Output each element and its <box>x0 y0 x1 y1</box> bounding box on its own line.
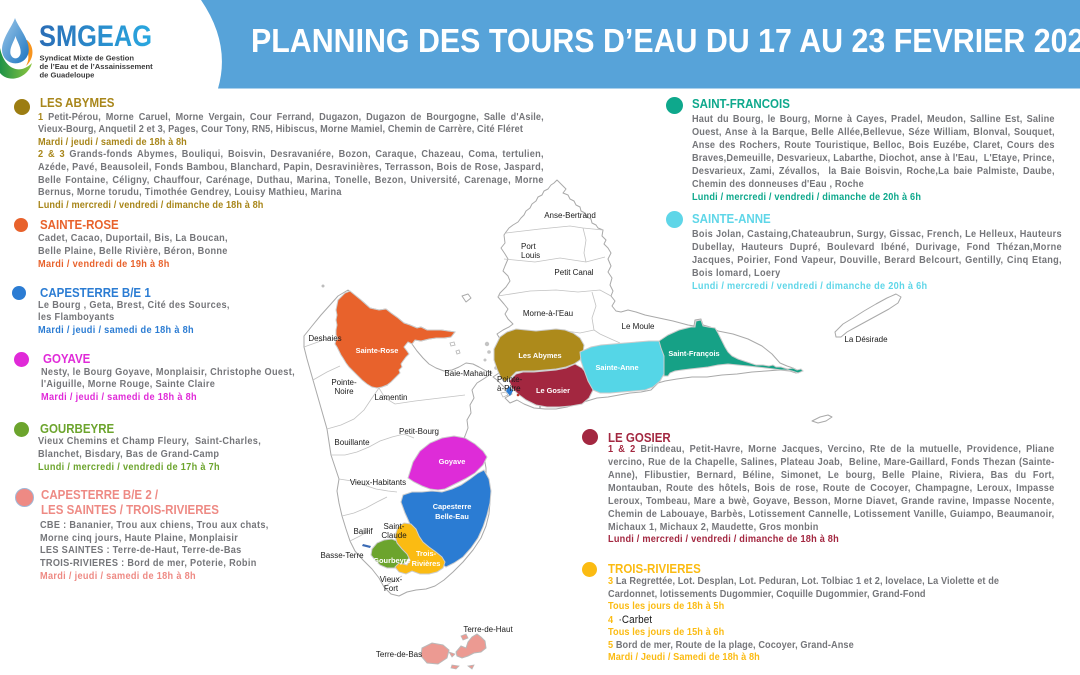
svg-text:Baie-Mahault: Baie-Mahault <box>444 369 492 378</box>
svg-text:Louis: Louis <box>521 251 540 260</box>
svg-text:Anse-Bertrand: Anse-Bertrand <box>544 211 596 220</box>
svg-text:La Désirade: La Désirade <box>844 335 888 344</box>
svg-text:Port: Port <box>521 242 536 251</box>
svg-text:Le Gosier: Le Gosier <box>536 386 570 395</box>
svg-text:Petit Canal: Petit Canal <box>554 268 593 277</box>
svg-text:Noire: Noire <box>334 387 354 396</box>
svg-text:Petit-Bourg: Petit-Bourg <box>399 427 439 436</box>
svg-text:Vieux-: Vieux- <box>380 575 403 584</box>
svg-text:Saint-François: Saint-François <box>668 349 719 358</box>
svg-text:Sainte-Rose: Sainte-Rose <box>356 346 399 355</box>
svg-text:à-Pitre: à-Pitre <box>497 384 521 393</box>
svg-text:Morne-à-l’Eau: Morne-à-l’Eau <box>523 309 573 318</box>
svg-text:SMGEAG: SMGEAG <box>39 20 152 53</box>
svg-text:Le Moule: Le Moule <box>622 322 655 331</box>
svg-text:Claude: Claude <box>381 531 407 540</box>
svg-text:Pointe-: Pointe- <box>331 378 357 387</box>
svg-text:Trois-: Trois- <box>416 549 437 558</box>
svg-text:Baillif: Baillif <box>353 527 373 536</box>
svg-text:Basse-Terre: Basse-Terre <box>320 551 364 560</box>
svg-text:Pointe-: Pointe- <box>497 375 523 384</box>
svg-text:Saint-: Saint- <box>384 522 405 531</box>
svg-text:Lamentin: Lamentin <box>375 393 408 402</box>
svg-text:Bouillante: Bouillante <box>334 438 370 447</box>
svg-text:Gourbeyre: Gourbeyre <box>373 556 410 565</box>
svg-text:Rivières: Rivières <box>412 559 441 568</box>
svg-text:Capesterre: Capesterre <box>433 502 472 511</box>
svg-text:Sainte-Anne: Sainte-Anne <box>595 363 638 372</box>
svg-text:de Guadeloupe: de Guadeloupe <box>40 71 95 80</box>
svg-text:Goyave: Goyave <box>439 457 466 466</box>
svg-text:Deshaies: Deshaies <box>308 334 341 343</box>
svg-text:Vieux-Habitants: Vieux-Habitants <box>350 478 406 487</box>
svg-text:Les Abymes: Les Abymes <box>518 351 561 360</box>
svg-text:Terre-de-Haut: Terre-de-Haut <box>463 625 513 634</box>
svg-text:Fort: Fort <box>384 584 399 593</box>
svg-text:Belle-Eau: Belle-Eau <box>435 512 469 521</box>
svg-text:Terre-de-Bas: Terre-de-Bas <box>376 650 422 659</box>
